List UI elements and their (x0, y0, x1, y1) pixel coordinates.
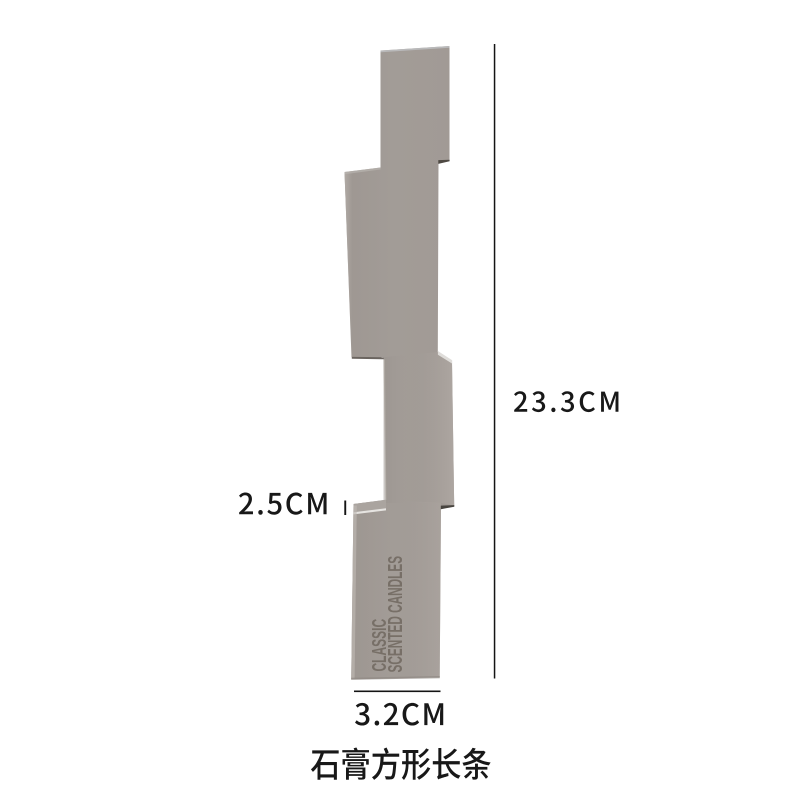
svg-text:SCENTED CANDLES: SCENTED CANDLES (385, 556, 407, 673)
